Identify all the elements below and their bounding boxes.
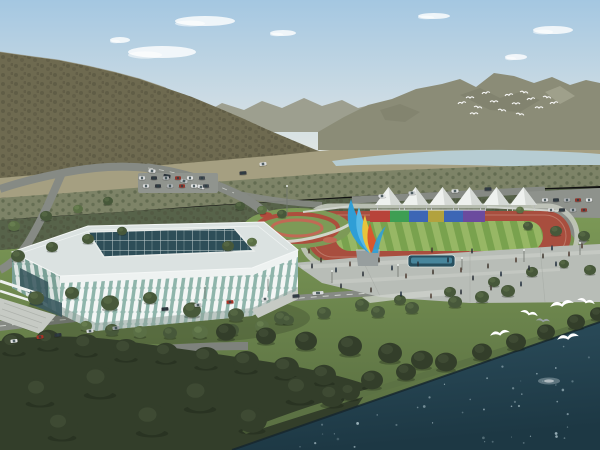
tree (73, 334, 99, 358)
tree-crown-light (319, 308, 326, 314)
person-head (542, 253, 544, 255)
car-glass (316, 292, 320, 295)
person-body (551, 247, 553, 250)
person-body (528, 267, 530, 270)
person-head (430, 293, 432, 295)
person-body (340, 285, 342, 288)
car (541, 198, 548, 203)
person-head (551, 245, 553, 247)
tree-crown-light (477, 292, 484, 298)
water-sparkle (356, 422, 359, 425)
tree-crown-light (560, 261, 565, 265)
car (558, 208, 565, 213)
tree-crown-light (438, 354, 449, 363)
tree (11, 250, 25, 263)
screenshot (0, 0, 600, 450)
tree (24, 378, 56, 407)
car (178, 184, 185, 188)
water-sparkle (588, 356, 590, 358)
car-glass (13, 340, 16, 343)
tree-crown-light (524, 223, 529, 227)
person-body (472, 277, 474, 280)
water-glow-bright (544, 379, 554, 382)
car (451, 189, 460, 194)
water-sparkle (299, 446, 301, 448)
car (150, 176, 157, 180)
water-sparkle (432, 422, 433, 423)
tree-crown-light (298, 333, 309, 342)
person-body (430, 295, 432, 298)
car-glass (157, 185, 159, 187)
tree-crown-light (315, 367, 327, 377)
person-head (515, 257, 517, 259)
tree (101, 295, 119, 311)
tree-crown-light (67, 288, 74, 294)
pole-lamp (204, 285, 206, 287)
banner-panel (370, 210, 390, 222)
car-glass (381, 195, 384, 197)
person-head (487, 263, 489, 265)
tree (516, 207, 524, 214)
banner-panel (428, 210, 444, 222)
tree (506, 334, 526, 352)
person-head (432, 269, 434, 271)
tree (193, 347, 219, 371)
car-glass (583, 209, 585, 212)
car-glass (262, 163, 265, 166)
tree (317, 307, 331, 320)
tree-crown-light (145, 293, 152, 299)
person-head (400, 291, 402, 293)
cloud-puff (533, 30, 553, 35)
person-head (417, 261, 419, 263)
person-body (311, 265, 313, 268)
water-sparkle (562, 389, 565, 392)
tent-post (485, 205, 486, 211)
car (186, 176, 193, 180)
tree-crown-light (248, 239, 253, 243)
tree (82, 367, 118, 400)
tree (472, 344, 492, 362)
tree (222, 241, 234, 252)
tree (235, 202, 245, 211)
tree (8, 221, 20, 232)
water-sparkle (462, 412, 464, 414)
car (198, 176, 205, 180)
person-body (362, 273, 364, 276)
car-glass (454, 190, 457, 192)
person-head (340, 283, 342, 285)
tree-crown-light (224, 242, 230, 247)
tree (36, 330, 60, 352)
car-glass (115, 327, 118, 330)
cloud-puff (128, 51, 162, 58)
tree-crown-light (103, 297, 112, 304)
water-sparkle (337, 438, 340, 441)
person-body (542, 255, 544, 258)
car-glass (57, 334, 60, 337)
pole-lamp (139, 298, 141, 300)
tree (501, 285, 515, 298)
car (378, 194, 387, 199)
tree-crown-light (288, 379, 304, 392)
tree (284, 376, 316, 405)
water-sparkle (486, 377, 488, 379)
water-sparkle (520, 381, 521, 382)
tree-crown-light (194, 326, 202, 332)
person-body (335, 269, 337, 272)
tree-crown-light (187, 383, 205, 397)
pole-lamp (397, 264, 399, 266)
water-sparkle (483, 409, 485, 411)
person-head (472, 275, 474, 277)
car-glass (588, 199, 590, 202)
car (574, 198, 581, 203)
tree (46, 412, 78, 441)
person-head (555, 261, 557, 263)
tree (526, 267, 538, 278)
water-sparkle (482, 437, 485, 440)
person-body (320, 259, 322, 262)
water-sparkle (417, 407, 419, 409)
person-body (378, 259, 380, 262)
car-glass (141, 177, 143, 179)
car-glass (181, 185, 183, 187)
tree-crown-light (30, 292, 38, 298)
water-sparkle (428, 396, 430, 398)
tree-crown-light (341, 338, 353, 348)
tree (117, 227, 127, 236)
pole-lamp (523, 249, 525, 251)
car (484, 187, 493, 192)
person-head (568, 251, 570, 253)
person-head (490, 285, 492, 287)
tree-crown-light (357, 300, 364, 306)
tree-crown-light (241, 410, 256, 422)
water-sparkle (514, 401, 516, 403)
car-glass (544, 199, 546, 202)
car-glass (197, 304, 200, 307)
water-sparkle (501, 365, 503, 367)
person-body (487, 265, 489, 268)
tree-crown-light (135, 327, 142, 333)
tree-crown-light (580, 232, 586, 237)
water-sparkle (512, 387, 514, 389)
water-sparkle (511, 406, 513, 408)
pole-lamp (461, 257, 463, 259)
person-body (370, 289, 372, 292)
cloud-puff (110, 40, 120, 44)
tree-crown-light (539, 326, 548, 333)
tree-crown-light (48, 243, 54, 248)
person-head (391, 265, 393, 267)
water-sparkle (555, 367, 557, 369)
tree-crown-light (185, 304, 194, 311)
tree (192, 325, 208, 340)
car-glass (205, 185, 207, 187)
tree-crown-light (236, 203, 241, 207)
person-head (405, 273, 407, 275)
car (547, 208, 554, 213)
person-head (447, 257, 449, 259)
tree (338, 336, 362, 358)
car (563, 198, 570, 203)
person-body (400, 293, 402, 296)
tree (578, 231, 590, 242)
person-body (417, 263, 419, 266)
tree (355, 299, 369, 312)
car-glass (572, 209, 574, 212)
car-glass (164, 308, 167, 311)
tree-crown-light (258, 207, 263, 211)
tree-crown-light (517, 207, 521, 210)
car (190, 184, 197, 188)
person-head (500, 271, 502, 273)
cloud-puff (175, 21, 205, 27)
car (154, 184, 161, 188)
tree-crown-light (322, 387, 335, 397)
tree (361, 371, 383, 391)
tree-crown-light (586, 266, 592, 271)
tree-crown-light (552, 227, 558, 232)
tree (378, 343, 402, 365)
tree (65, 287, 79, 300)
person-head (460, 267, 462, 269)
person-body (460, 291, 462, 294)
car (585, 198, 592, 203)
banner-panel (444, 210, 463, 222)
water-sparkle (321, 424, 323, 426)
tree (46, 242, 58, 253)
tree (40, 211, 52, 222)
car-glass (561, 209, 563, 212)
water-sparkle (567, 426, 568, 427)
tree-crown-light (399, 365, 409, 373)
water-sparkle (518, 405, 520, 407)
tree (182, 381, 218, 414)
tree (475, 291, 489, 304)
tree-crown-light (10, 222, 16, 227)
tree (282, 315, 294, 326)
person-head (471, 248, 473, 250)
water-sparkle (571, 380, 573, 382)
car-glass (550, 209, 552, 212)
tree (143, 292, 157, 305)
tree-crown-light (259, 329, 269, 337)
tree-crown-light (276, 359, 289, 369)
car-glass (145, 185, 147, 187)
tree-crown-light (381, 345, 393, 355)
water-sparkle (567, 413, 569, 415)
person-body (405, 275, 407, 278)
cloud-puff (418, 16, 434, 20)
person-head (349, 261, 351, 263)
car (552, 198, 559, 203)
person-body (555, 263, 557, 266)
pole-lamp (286, 185, 288, 187)
car-glass (229, 301, 232, 304)
tree (584, 265, 596, 276)
water-sparkle (536, 373, 538, 375)
car (142, 184, 149, 188)
tree-crown-light (116, 341, 129, 351)
tree-crown-light (104, 198, 109, 202)
tree (371, 306, 385, 319)
tree (154, 343, 178, 365)
car-glass (39, 336, 42, 339)
tree-crown-light (407, 303, 414, 309)
water-sparkle (469, 399, 471, 401)
person-body (431, 249, 433, 252)
person-head (581, 243, 583, 245)
tree (396, 364, 416, 382)
water-sparkle (563, 346, 565, 348)
person-body (500, 273, 502, 276)
tree (537, 324, 555, 340)
water-sparkle (484, 441, 485, 442)
tree-crown-light (446, 288, 452, 293)
tree-crown-light (13, 251, 20, 257)
car-glass (555, 199, 557, 202)
person-body (391, 267, 393, 270)
tree-crown-light (236, 353, 249, 363)
tree-crown-light (592, 308, 600, 314)
car (138, 176, 145, 180)
person-head (308, 248, 310, 250)
pool-water (411, 258, 452, 264)
person-body (308, 250, 310, 253)
car (202, 184, 209, 188)
car (174, 176, 181, 180)
car-glass (153, 177, 155, 179)
car (162, 176, 169, 180)
water-sparkle (556, 401, 558, 403)
person-body (471, 250, 473, 253)
person-body (520, 283, 522, 286)
person-body (515, 259, 517, 262)
tree-crown-light (118, 228, 123, 232)
pole-lamp (267, 277, 269, 279)
car (408, 191, 417, 196)
person-body (581, 245, 583, 248)
tree (247, 238, 257, 247)
person-head (335, 267, 337, 269)
water-sparkle (354, 446, 356, 448)
pole-lamp (579, 242, 581, 244)
car (166, 184, 173, 188)
banner-panel (409, 210, 428, 222)
water-sparkle (564, 437, 566, 439)
tree-crown-light (28, 381, 44, 394)
tree (488, 277, 500, 288)
person-head (311, 263, 313, 265)
car-glass (487, 188, 490, 190)
water-sparkle (555, 435, 558, 438)
tree (28, 291, 44, 306)
person-body (490, 287, 492, 290)
tree-crown-light (87, 369, 105, 383)
tree (567, 314, 585, 330)
water-sparkle (423, 405, 426, 408)
tree (277, 210, 287, 219)
person-body (568, 253, 570, 256)
banner-panel (463, 210, 485, 222)
cloud-puff (270, 33, 283, 37)
tree-crown-light (84, 235, 90, 240)
tree (103, 197, 113, 206)
person-head (370, 287, 372, 289)
person-head (460, 289, 462, 291)
car (580, 208, 587, 213)
parking-lot-upper (138, 173, 218, 193)
person-head (520, 281, 522, 283)
car-glass (201, 177, 203, 179)
person-head (320, 257, 322, 259)
tree-crown-light (364, 372, 375, 381)
banner-panel (390, 210, 409, 222)
tree-crown-light (196, 349, 209, 359)
car-glass (151, 170, 154, 173)
tree (340, 384, 360, 402)
tree (233, 351, 259, 375)
water-sparkle (530, 436, 531, 437)
water-sparkle (555, 432, 558, 435)
car-glass (165, 177, 167, 179)
tree-crown-light (76, 336, 89, 346)
water-sparkle (444, 384, 445, 385)
tree (523, 222, 533, 231)
person-body (460, 269, 462, 272)
flower-patch (323, 237, 337, 243)
car-glass (566, 199, 568, 202)
car (569, 208, 576, 213)
water-sparkle (523, 442, 525, 444)
tree-crown-light (219, 325, 229, 333)
tree (257, 206, 267, 215)
tree (113, 339, 139, 363)
tree-crown-light (414, 352, 425, 361)
car-glass (169, 185, 171, 187)
car-glass (189, 177, 191, 179)
water-sparkle (395, 424, 397, 426)
car-glass (177, 177, 179, 179)
cloud-puff (505, 57, 516, 61)
car-glass (295, 295, 298, 298)
tree-crown-light (257, 321, 264, 327)
water-sparkle (542, 381, 543, 382)
car-glass (577, 199, 579, 202)
tree (448, 296, 462, 309)
car-glass (264, 298, 267, 301)
tree (435, 353, 457, 373)
tree (82, 234, 94, 245)
water-sparkle (492, 441, 494, 443)
person-head (378, 257, 380, 259)
water-sparkle (521, 393, 522, 394)
person-head (362, 271, 364, 273)
tree-crown-light (490, 278, 496, 283)
tree-crown-light (165, 328, 172, 334)
person-head (528, 265, 530, 267)
car-glass (193, 185, 195, 187)
water-sparkle (314, 442, 316, 444)
tree-crown-light (139, 407, 157, 421)
tree (1, 333, 27, 357)
tree (134, 405, 170, 438)
tree-crown-light (284, 316, 290, 321)
water-sparkle (511, 437, 512, 438)
person-head (431, 247, 433, 249)
